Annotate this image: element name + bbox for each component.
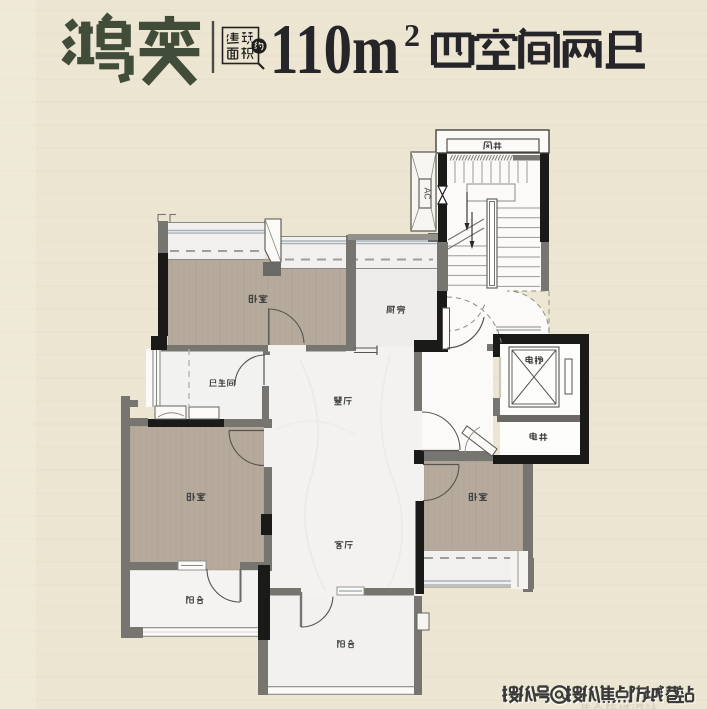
svg-text:110m: 110m: [270, 10, 399, 88]
svg-text:AC: AC: [423, 188, 433, 200]
svg-text:2: 2: [404, 17, 420, 53]
